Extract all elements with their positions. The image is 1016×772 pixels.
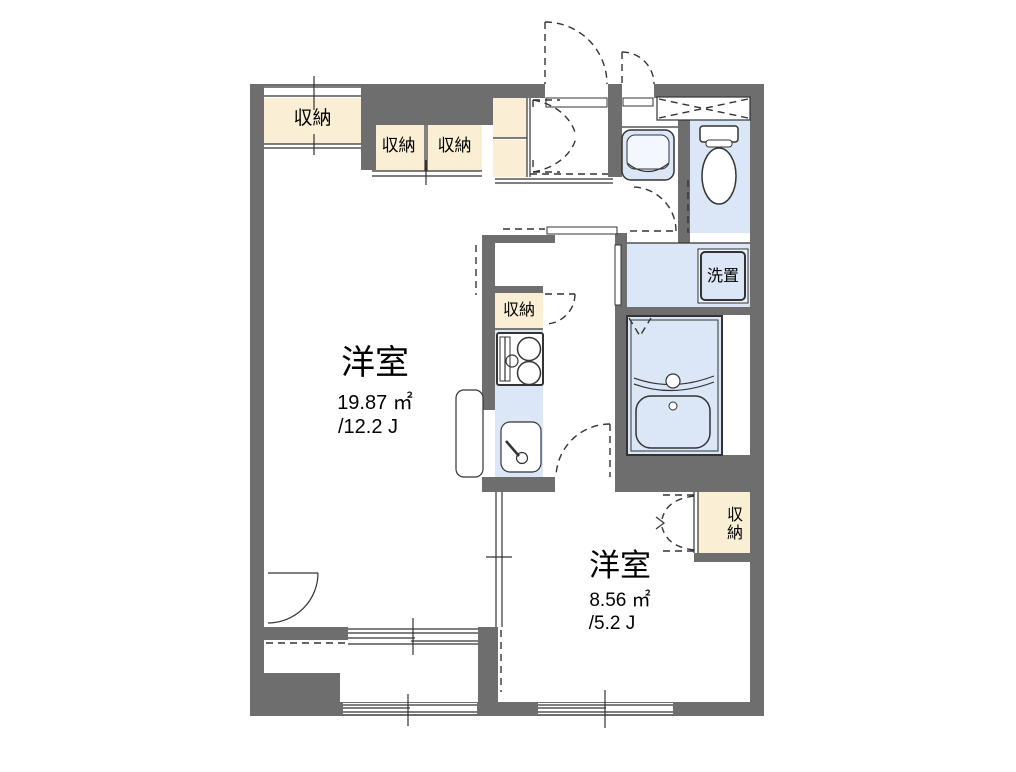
wall-kitchen-bottom xyxy=(482,477,555,492)
kitchen-sink-fixture xyxy=(501,422,541,472)
room1-balcony-door xyxy=(268,573,318,623)
wall-left xyxy=(250,84,264,716)
kitchen-closet-door xyxy=(545,294,575,324)
wall-kitchen-left xyxy=(482,235,495,410)
room2-tatami: /5.2 J xyxy=(537,614,687,635)
label-closet-box-1: 収納 xyxy=(372,137,425,156)
room1-area: 19.87 ㎡ xyxy=(300,392,450,414)
room1-name: 洋室 xyxy=(300,345,450,382)
wall-bottom xyxy=(250,702,764,716)
service-door xyxy=(622,52,654,84)
stove-fixture xyxy=(497,333,543,385)
bathtub-fixture xyxy=(627,316,722,455)
wall-entry-divider xyxy=(608,98,622,177)
label-closet-top-left: 収納 xyxy=(264,109,361,130)
room2-area: 8.56 ㎡ xyxy=(545,591,695,612)
wall-closet-separator xyxy=(361,98,376,170)
service-opening xyxy=(622,84,654,98)
room2-door xyxy=(556,424,610,477)
shoe-cabinet-lower xyxy=(493,140,527,177)
entrance-closet-bifold-door xyxy=(533,100,576,172)
label-washer: 洗置 xyxy=(701,268,745,286)
entrance-door xyxy=(545,22,607,84)
floor-plan-drawing xyxy=(0,0,1016,772)
toilet-fixture xyxy=(700,126,738,204)
entry-overhead-cabinet xyxy=(657,97,750,120)
wall-right xyxy=(750,84,764,716)
room1-tatami: /12.2 J xyxy=(293,416,443,438)
wall-room2-balcony-divider xyxy=(478,627,498,716)
entrance-step xyxy=(546,98,607,107)
washbasin-fixture xyxy=(622,130,674,180)
floor-plan: 収納 収納 収納 収納 収納 洗置 洋室 19.87 ㎡ /12.2 J 洋室 … xyxy=(0,0,1016,772)
label-closet-room2: 収納 xyxy=(707,496,741,552)
counter-fixture xyxy=(456,390,483,477)
entrance-opening xyxy=(545,84,608,98)
wall-washer-bath xyxy=(615,307,750,315)
room2-closet-bifold-door xyxy=(656,495,694,551)
room2-name: 洋室 xyxy=(545,549,695,583)
shoe-cabinet-upper xyxy=(493,98,527,138)
wall-kitchen-closet-top xyxy=(495,286,543,293)
label-closet-kitchen: 収納 xyxy=(495,302,543,320)
wall-room2-closet-bottom xyxy=(694,553,764,562)
washer-room-opening xyxy=(615,245,621,305)
wall-top-thick xyxy=(361,84,493,125)
wall-room1-bottom xyxy=(264,627,350,640)
hall-lintel xyxy=(547,227,617,234)
wall-bath-room2 xyxy=(615,455,764,492)
service-step xyxy=(623,98,653,106)
label-closet-box-2: 収納 xyxy=(427,137,482,156)
